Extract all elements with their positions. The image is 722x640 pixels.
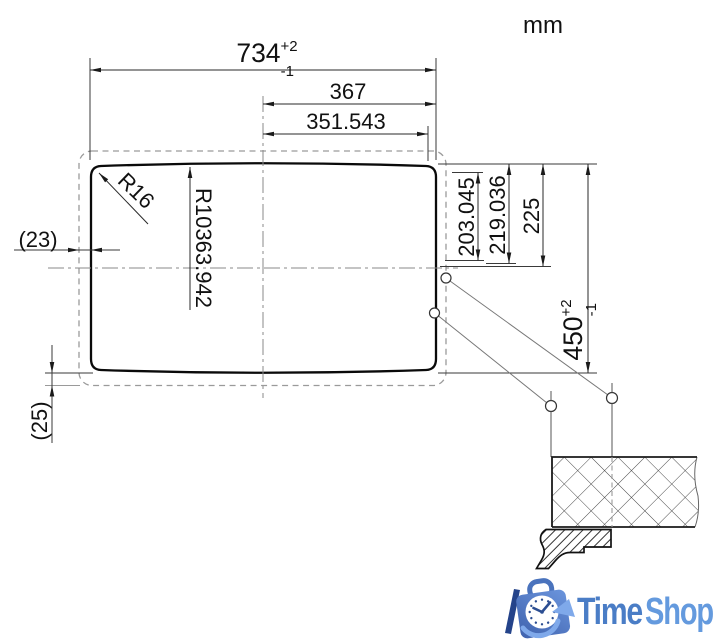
dim-corner-radius: R16 [113,168,159,214]
sink-cutout-drawing: mm 734+2-1 367 351.543 R16 R10363.942 (2… [0,0,722,640]
dim-vert-hole2: 219.036 [485,175,510,255]
logo-clock-center-icon [540,610,544,614]
timeshop-logo: TimeShop [505,578,713,639]
hole-top-icon [441,273,451,283]
timeshop-logo-icon [505,578,575,639]
dim-vert-hole1: 203.045 [454,177,479,257]
hole-detail-left-icon [546,401,557,412]
unit-label: mm [523,12,563,39]
dim-overall-width: 734+2-1 [236,38,297,80]
dim-edge-radius: R10363.942 [191,188,216,308]
countertop-section [552,457,699,527]
dim-ref-left: (23) [18,227,57,252]
dim-hole-span: 367 [330,79,367,104]
dim-overall-height: 450+2-1 [558,299,600,360]
dim-vert-center: 225 [519,198,544,235]
technical-drawing-canvas: mm 734+2-1 367 351.543 R16 R10363.942 (2… [0,0,722,640]
dim-ref-bottom: (25) [27,401,52,440]
hole-detail-right-icon [607,393,618,404]
sink-rim-profile [537,530,612,569]
centerlines [48,96,458,398]
hole-bottom-icon [430,308,440,318]
timeshop-logo-text: TimeShop [577,591,713,633]
dim-hole-span-ref: 351.543 [306,109,386,134]
